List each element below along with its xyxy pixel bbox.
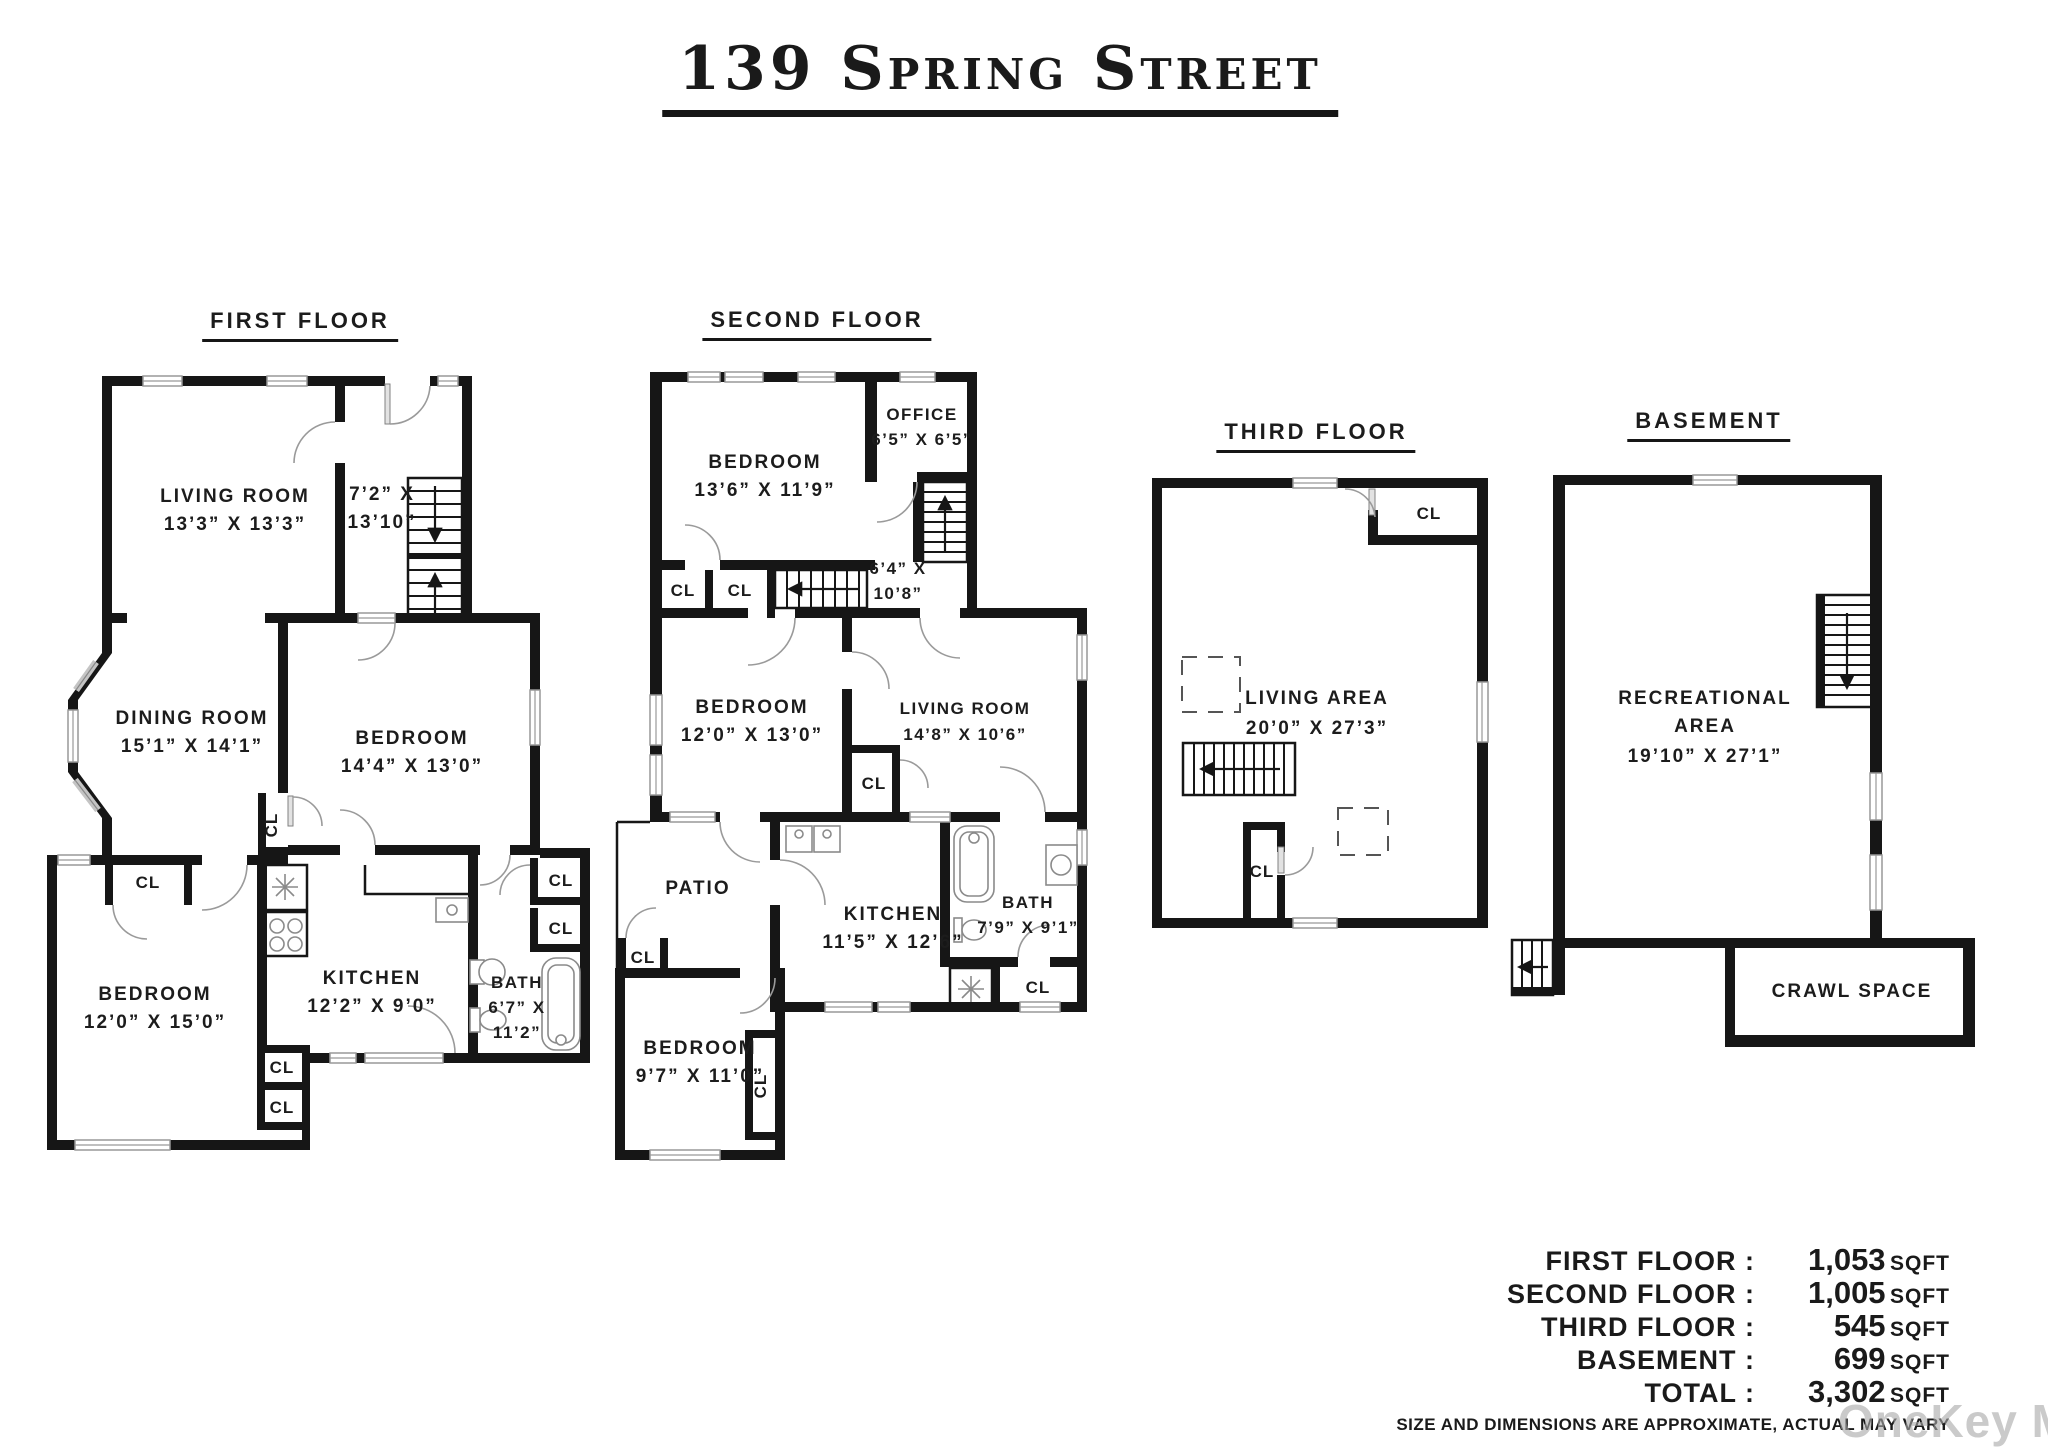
first-living-room-dims: 13’3” X 13’3” bbox=[164, 514, 306, 535]
summary-value: 699 bbox=[1834, 1341, 1886, 1376]
second-bedroom-top-name: BEDROOM bbox=[708, 452, 821, 473]
first-floor-plan: LIVING ROOM 13’3” X 13’3” 7’2” X 13’10” … bbox=[40, 370, 600, 1170]
third-floor-doors bbox=[1278, 489, 1375, 875]
third-closet-label: CL bbox=[1250, 862, 1275, 881]
second-bedroom-bottom-dims: 9’7” X 11’0” bbox=[636, 1066, 765, 1087]
summary-value: 1,005 bbox=[1808, 1275, 1886, 1310]
summary-row-third-floor: THIRD FLOOR : 545 SQFT bbox=[1396, 1308, 1950, 1341]
second-kitchen-name: KITCHEN bbox=[844, 904, 942, 925]
first-stair-hall-dims1: 7’2” X bbox=[349, 484, 415, 505]
second-bath-dims: 7’9” X 9’1” bbox=[977, 918, 1079, 937]
first-bath-dims2: 11’2” bbox=[493, 1023, 541, 1042]
first-bedroom-left-name: BEDROOM bbox=[98, 984, 211, 1005]
second-bedroom-top-dims: 13’6” X 11’9” bbox=[694, 480, 835, 501]
second-bedroom-bottom-name: BEDROOM bbox=[643, 1038, 756, 1059]
first-bath-name: BATH bbox=[491, 973, 543, 992]
second-closet-label: CL bbox=[751, 1074, 770, 1099]
summary-label: BASEMENT : bbox=[1577, 1345, 1755, 1376]
page-title: 139 Spring Street bbox=[662, 34, 1338, 117]
third-living-area-dims: 20’0” X 27’3” bbox=[1246, 718, 1388, 739]
summary-unit: SQFT bbox=[1890, 1285, 1950, 1308]
third-living-area-name: LIVING AREA bbox=[1245, 688, 1389, 709]
mls-watermark: OneKey MLS bbox=[1838, 1394, 2048, 1448]
first-floor-stairs bbox=[408, 478, 462, 617]
basement-stairs bbox=[1512, 595, 1872, 995]
third-floor-title: THIRD FLOOR bbox=[1216, 419, 1415, 453]
first-closet-label: CL bbox=[136, 873, 161, 892]
first-bedroom-right-dims: 14’4” X 13’0” bbox=[341, 756, 483, 777]
first-kitchen-name: KITCHEN bbox=[323, 968, 421, 989]
first-floor-title: FIRST FLOOR bbox=[202, 308, 398, 342]
second-floor-plan: BEDROOM 13’6” X 11’9” OFFICE 6’5” X 6’5”… bbox=[600, 300, 1100, 1180]
third-floor-stairs bbox=[1183, 743, 1295, 795]
third-floor-plan: LIVING AREA 20’0” X 27’3” CL CL bbox=[1140, 455, 1500, 945]
summary-unit: SQFT bbox=[1890, 1252, 1950, 1275]
second-patio-name: PATIO bbox=[665, 878, 730, 899]
second-bedroom-mid-dims: 12’0” X 13’0” bbox=[681, 725, 823, 746]
first-kitchen-dims: 12’2” X 9’0” bbox=[307, 996, 437, 1017]
second-office-name: OFFICE bbox=[886, 405, 957, 424]
summary-unit: SQFT bbox=[1890, 1351, 1950, 1374]
first-dining-room-dims: 15’1” X 14’1” bbox=[121, 736, 263, 757]
basement-crawl-space-name: CRAWL SPACE bbox=[1772, 981, 1933, 1002]
first-bedroom-right-name: BEDROOM bbox=[355, 728, 468, 749]
first-closet-label: CL bbox=[262, 813, 281, 838]
summary-value: 545 bbox=[1834, 1308, 1886, 1343]
second-living-room-name: LIVING ROOM bbox=[900, 699, 1031, 718]
basement-title: BASEMENT bbox=[1627, 408, 1790, 442]
first-closet-label: CL bbox=[270, 1098, 295, 1117]
second-kitchen-dims: 11’5” X 12’6” bbox=[822, 932, 963, 953]
basement-rec-area-name2: AREA bbox=[1674, 716, 1736, 737]
basement-rec-area-name1: RECREATIONAL bbox=[1618, 688, 1792, 709]
second-closet-label: CL bbox=[862, 774, 887, 793]
first-closet-label: CL bbox=[270, 1058, 295, 1077]
first-dining-room-name: DINING ROOM bbox=[116, 708, 269, 729]
fan-icon bbox=[958, 976, 984, 1002]
first-closet-label: CL bbox=[549, 919, 574, 938]
summary-label: THIRD FLOOR : bbox=[1541, 1312, 1755, 1343]
second-office-dims: 6’5” X 6’5” bbox=[871, 430, 973, 449]
second-bedroom-mid-name: BEDROOM bbox=[695, 697, 808, 718]
summary-label: TOTAL : bbox=[1645, 1378, 1756, 1409]
fan-icon bbox=[272, 874, 298, 900]
floor-plan-sheet: 139 Spring Street FIRST FLOOR SECOND FLO… bbox=[0, 0, 2048, 1448]
second-living-room-dims: 14’8” X 10’6” bbox=[903, 725, 1026, 744]
summary-label: FIRST FLOOR : bbox=[1546, 1246, 1755, 1277]
second-closet-label: CL bbox=[671, 581, 696, 600]
summary-unit: SQFT bbox=[1890, 1318, 1950, 1341]
third-closet-label: CL bbox=[1417, 504, 1442, 523]
basement-rec-area-dims: 19’10” X 27’1” bbox=[1628, 746, 1783, 767]
basement-plan: RECREATIONAL AREA 19’10” X 27’1” CRAWL S… bbox=[1500, 465, 2000, 1065]
first-bedroom-left-dims: 12’0” X 15’0” bbox=[84, 1012, 226, 1033]
summary-row-first-floor: FIRST FLOOR : 1,053 SQFT bbox=[1396, 1242, 1950, 1275]
second-closet-label: CL bbox=[631, 948, 656, 967]
first-stair-hall-dims2: 13’10” bbox=[347, 512, 416, 533]
first-bath-dims1: 6’7” X bbox=[488, 998, 545, 1017]
first-living-room-name: LIVING ROOM bbox=[160, 486, 310, 507]
second-closet-label: CL bbox=[1026, 978, 1051, 997]
second-closet-label: CL bbox=[728, 581, 753, 600]
first-floor-labels: LIVING ROOM 13’3” X 13’3” 7’2” X 13’10” … bbox=[84, 484, 573, 1117]
summary-row-basement: BASEMENT : 699 SQFT bbox=[1396, 1341, 1950, 1374]
second-bath-name: BATH bbox=[1002, 893, 1054, 912]
summary-value: 1,053 bbox=[1808, 1242, 1886, 1277]
summary-label: SECOND FLOOR : bbox=[1507, 1279, 1755, 1310]
second-stair-hall-dims2: 10’8” bbox=[873, 584, 922, 603]
summary-row-second-floor: SECOND FLOOR : 1,005 SQFT bbox=[1396, 1275, 1950, 1308]
second-stair-hall-dims1: 6’4” X bbox=[869, 559, 926, 578]
basement-labels: RECREATIONAL AREA 19’10” X 27’1” CRAWL S… bbox=[1618, 688, 1932, 1002]
first-closet-label: CL bbox=[549, 871, 574, 890]
